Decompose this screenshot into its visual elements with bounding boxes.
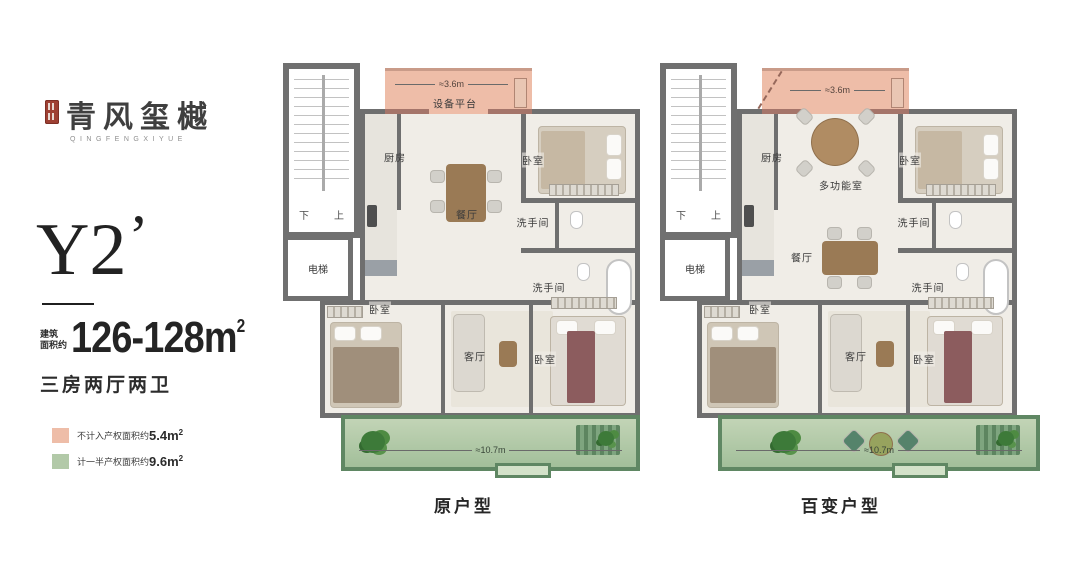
equipment-platform: ≈3.6m — [762, 68, 909, 114]
blanket — [944, 331, 972, 403]
platform-dimension: ≈3.6m — [395, 79, 508, 89]
toilet-icon — [949, 211, 962, 229]
planter-box — [495, 463, 551, 478]
pillow — [361, 327, 381, 340]
pillow — [984, 135, 998, 155]
elevator: 电梯 — [283, 235, 353, 301]
platform-dimension: ≈3.6m — [790, 85, 885, 95]
bedroom-top-label: 卧室 — [899, 153, 921, 168]
kitchen-counter — [742, 114, 774, 260]
blanket — [541, 131, 585, 189]
elevator-label: 电梯 — [685, 261, 705, 276]
stairwell: 下 上 — [660, 63, 737, 238]
bath-bottom-label: 洗手间 — [912, 280, 945, 295]
chair — [431, 171, 444, 182]
stair-up-label: 上 — [711, 207, 721, 222]
kitchen-island — [742, 260, 774, 276]
stair-rail — [699, 75, 702, 191]
bedroom-right-label: 卧室 — [534, 352, 556, 367]
wardrobe — [928, 297, 994, 309]
platform-fold-line — [757, 71, 782, 109]
wall — [555, 203, 559, 253]
kitchen-island — [365, 260, 397, 276]
brand-latin: QINGFENGXIYUE — [70, 136, 187, 143]
platform-window — [514, 78, 527, 108]
elevator: 电梯 — [660, 235, 730, 301]
bedroom-left-label: 卧室 — [749, 302, 771, 317]
pillow — [712, 327, 732, 340]
pillow — [607, 135, 621, 155]
living-label: 客厅 — [464, 349, 486, 364]
stairwell: 下 上 — [283, 63, 360, 238]
bedroom-right-label: 卧室 — [913, 352, 935, 367]
rooms-summary: 三房两厅两卫 — [40, 370, 172, 397]
chair — [858, 277, 871, 288]
wall — [521, 248, 640, 253]
bath-top-label: 洗手间 — [898, 215, 931, 230]
chair — [431, 201, 444, 212]
pillow — [984, 159, 998, 179]
chair — [828, 228, 841, 239]
coffee-table — [499, 341, 517, 367]
pillow — [595, 321, 615, 334]
blanket — [567, 331, 595, 403]
bath-top-label: 洗手间 — [517, 215, 550, 230]
stove-icon — [744, 205, 754, 227]
balcony-dimension-text: ≈10.7m — [476, 445, 506, 455]
wardrobe — [551, 297, 617, 309]
wardrobe — [704, 306, 740, 318]
wardrobe — [327, 306, 363, 318]
chair — [858, 228, 871, 239]
wall — [898, 248, 1017, 253]
living-label: 客厅 — [845, 349, 867, 364]
plant-icon — [998, 431, 1014, 446]
platform-dimension-text: ≈3.6m — [825, 85, 850, 95]
elevator-label: 电梯 — [308, 261, 328, 276]
wall — [898, 198, 1017, 203]
stair-down-label: 下 — [299, 207, 309, 222]
chair — [488, 201, 501, 212]
pillow — [738, 327, 758, 340]
poster-canvas: 青风玺樾 QINGFENGXIYUE Y2’ 建筑 面积约 126-128m2 … — [0, 0, 1080, 571]
dining-label: 餐厅 — [791, 250, 813, 265]
balcony: ≈10.7m — [341, 415, 640, 471]
wardrobe — [926, 184, 996, 196]
wall — [521, 198, 640, 203]
bedroom-top-label: 卧室 — [522, 153, 544, 168]
bedroom-left-label: 卧室 — [369, 302, 391, 317]
platform-dimension-text: ≈3.6m — [439, 79, 464, 89]
coffee-table — [876, 341, 894, 367]
legend: 不计入产权面积约 5.4m2 计一半产权面积约 9.6m2 — [52, 428, 183, 480]
unit-code-prime: ’ — [128, 203, 148, 269]
brand-name: 青风玺樾 — [66, 92, 214, 136]
stair-up-label: 上 — [334, 207, 344, 222]
dining-label: 餐厅 — [456, 207, 478, 222]
area-prefix: 建筑 面积约 — [40, 329, 67, 352]
balcony: ≈10.7m — [718, 415, 1040, 471]
blanket — [918, 131, 962, 189]
floorplan-original: 下 上 电梯 ≈3.6m 设备平台 厨房 餐厅 — [283, 63, 645, 475]
area-value: 126-128m2 — [71, 318, 245, 358]
multi-room-label: 多功能室 — [819, 178, 863, 193]
equipment-platform: ≈3.6m 设备平台 — [385, 68, 532, 114]
legend-value: 9.6m2 — [149, 454, 183, 469]
pillow — [607, 159, 621, 179]
caption-original: 原户型 — [319, 492, 609, 517]
floorplan-variable: 下 上 电梯 ≈3.6m 厨房 多功能室 — [660, 63, 1022, 475]
stair-rail — [322, 75, 325, 191]
wall — [906, 305, 910, 418]
legend-swatch-balcony — [52, 454, 69, 469]
legend-label: 计一半产权面积约 — [77, 455, 149, 468]
toilet-icon — [577, 263, 590, 281]
area-block: 建筑 面积约 126-128m2 — [40, 318, 274, 358]
round-table — [812, 119, 858, 165]
plant-icon — [598, 431, 614, 446]
wall — [529, 305, 533, 418]
area-prefix-line1: 建筑 — [40, 329, 67, 340]
area-value-text: 126-128m — [71, 313, 237, 362]
stair-down-label: 下 — [676, 207, 686, 222]
platform-label: 设备平台 — [433, 96, 477, 111]
chair — [488, 171, 501, 182]
brand-seal-icon — [45, 100, 59, 124]
platform-window — [891, 78, 904, 108]
legend-item-balcony: 计一半产权面积约 9.6m2 — [52, 454, 183, 469]
stove-icon — [367, 205, 377, 227]
blanket — [333, 347, 399, 403]
balcony-dimension-text: ≈10.7m — [864, 445, 894, 455]
planter-box — [892, 463, 948, 478]
kitchen-counter — [365, 114, 397, 260]
unit-code: Y2’ — [36, 206, 148, 287]
blanket — [710, 347, 776, 403]
wall — [441, 305, 445, 418]
legend-label: 不计入产权面积约 — [77, 429, 149, 442]
toilet-icon — [570, 211, 583, 229]
legend-value: 5.4m2 — [149, 428, 183, 443]
pillow — [972, 321, 992, 334]
bath-bottom-label: 洗手间 — [533, 280, 566, 295]
wardrobe — [549, 184, 619, 196]
kitchen-label: 厨房 — [384, 150, 406, 165]
wall — [932, 203, 936, 253]
toilet-icon — [956, 263, 969, 281]
divider-rule — [42, 303, 94, 305]
balcony-dimension: ≈10.7m — [359, 445, 622, 455]
kitchen-label: 厨房 — [761, 150, 783, 165]
pillow — [335, 327, 355, 340]
unit-code-text: Y2 — [36, 209, 126, 291]
legend-item-platform: 不计入产权面积约 5.4m2 — [52, 428, 183, 443]
caption-variable: 百变户型 — [696, 492, 986, 517]
chair — [828, 277, 841, 288]
area-value-sup: 2 — [237, 316, 246, 336]
area-prefix-line2: 面积约 — [40, 340, 67, 351]
balcony-dimension: ≈10.7m — [736, 445, 1022, 455]
wall — [818, 305, 822, 418]
dining-table — [822, 241, 878, 275]
legend-swatch-platform — [52, 428, 69, 443]
